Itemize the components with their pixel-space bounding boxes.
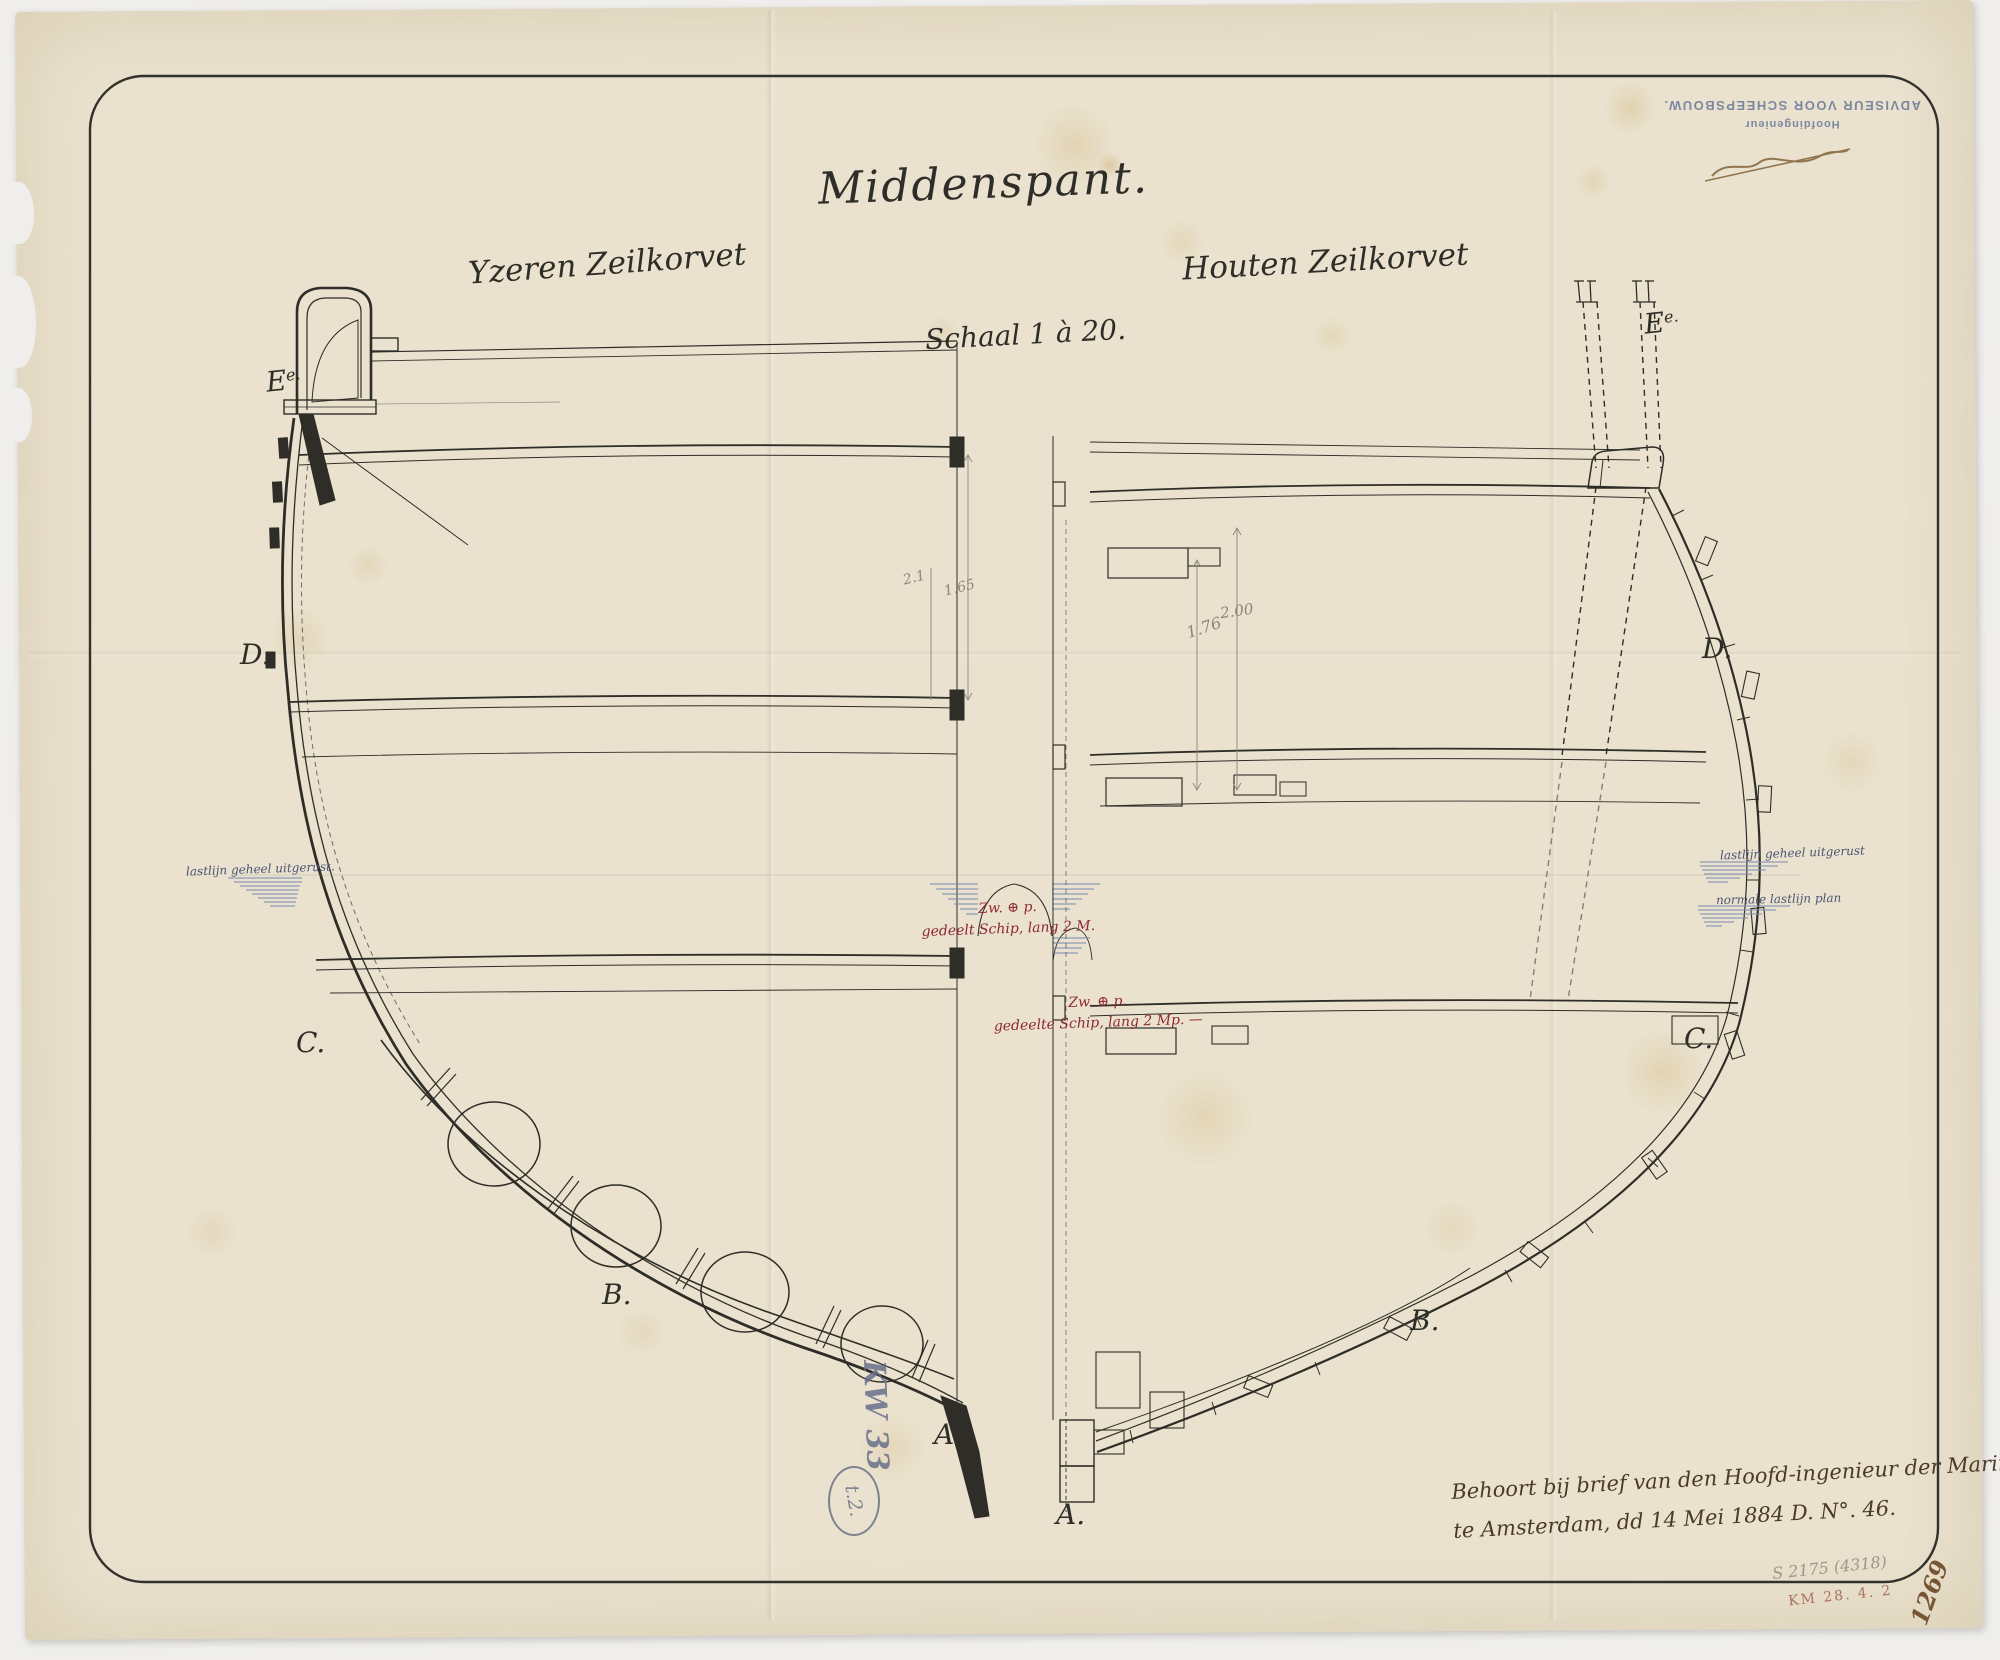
signature-scrawl [1705, 149, 1850, 181]
border-frame [90, 76, 1938, 1582]
section-letter-left-a: A. [934, 1418, 963, 1451]
section-letter-right-d: D. [1702, 632, 1732, 665]
section-letter-right-c: C. [1684, 1022, 1713, 1055]
section-letter-right-e: Ee. [1642, 304, 1680, 340]
drawing-linework [0, 0, 2000, 1660]
stamp-line2: ADVISEUR VOOR SCHEEPSBOUW. [1652, 96, 1932, 116]
section-letter-left-e: Ee. [264, 362, 302, 398]
waterline-hatch-left [228, 878, 302, 906]
waterline-label-right-lower: normale lastlijn plan [1716, 891, 1842, 907]
archive-kw-number: KW 33 [856, 1359, 895, 1471]
section-letter-left-d: D. [240, 638, 270, 671]
section-letter-right-b: B. [1410, 1304, 1439, 1337]
archive-circled-code: t.2. [828, 1466, 880, 1536]
section-letter-left-c: C. [296, 1026, 325, 1059]
section-letter-left-b: B. [602, 1278, 631, 1311]
scanned-drawing-page: { "document": { "title": "Middenspant.",… [0, 0, 2000, 1660]
archive-stamp: Hoofdingenieur ADVISEUR VOOR SCHEEPSBOUW… [1652, 96, 1932, 132]
circled-code-text: t.2. [840, 1483, 867, 1518]
section-letter-right-a: A. [1056, 1498, 1085, 1531]
stamp-line1: Hoofdingenieur [1652, 116, 1932, 133]
